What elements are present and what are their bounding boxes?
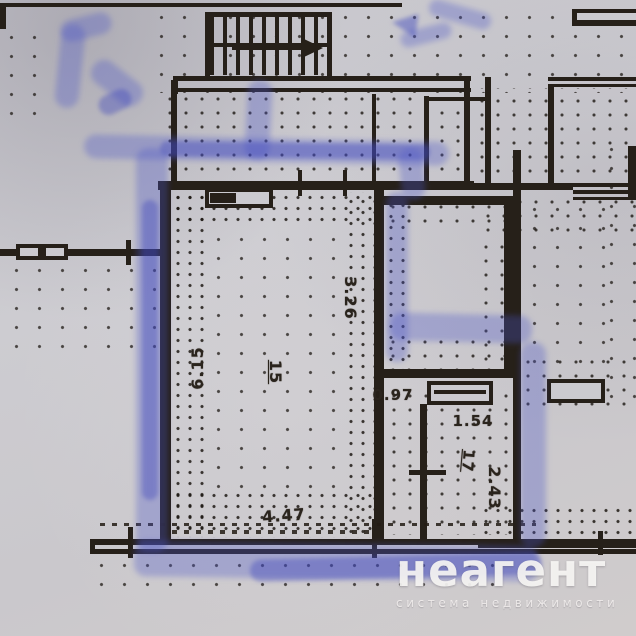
watermark-tagline: система недвижимости	[396, 596, 636, 610]
floor-plan-scan: 6.15 15 3.26 0.97 1.54 17 2.43 4.47 неаг…	[0, 0, 636, 636]
watermark: неагент система недвижимости	[396, 548, 636, 610]
dimension-label: 3.26	[340, 270, 360, 326]
dimension-label: 4.47	[257, 504, 310, 528]
corridor-wall-outer	[173, 76, 471, 81]
partition-wall	[424, 97, 490, 101]
room-wall-right	[374, 190, 384, 540]
doorway-lintel-gap	[577, 13, 636, 20]
threshold-line	[573, 197, 636, 200]
wall-top-boundary	[0, 3, 402, 7]
wall-segment	[548, 84, 636, 87]
alcove-wall-bottom	[378, 369, 515, 378]
stipple-texture	[0, 258, 156, 353]
dimension-label: 0.97	[368, 386, 418, 404]
marker-curve-arrow-icon	[54, 23, 87, 109]
room-number: 15	[265, 347, 285, 397]
wall-segment	[485, 77, 491, 185]
watermark-brand: неагент	[396, 548, 636, 593]
door-tick	[298, 170, 302, 196]
wall-segment	[628, 146, 636, 198]
dashed-line	[172, 530, 374, 534]
threshold-line	[573, 183, 636, 187]
stairs-right-rail	[327, 12, 332, 79]
corridor-wall-inner	[173, 88, 471, 92]
door-tick	[126, 240, 131, 265]
corridor-left-wall	[171, 80, 177, 183]
window-icon	[547, 379, 605, 403]
wall-segment	[471, 183, 573, 190]
room-number: 17	[457, 440, 478, 481]
marker-stroke	[520, 342, 546, 547]
wall-segment	[0, 3, 6, 29]
window-icon	[42, 244, 68, 260]
wall-niche-fill	[210, 193, 236, 203]
dimension-label: 1.54	[448, 412, 498, 430]
alcove-wall-right	[504, 196, 514, 378]
stipple-texture	[0, 28, 42, 123]
door-tick	[409, 470, 446, 475]
window-inner-line	[434, 390, 486, 394]
dimension-label: 6.15	[188, 338, 208, 398]
wall-segment	[548, 77, 636, 81]
marker-left-arrow-icon	[390, 10, 418, 37]
window-icon	[16, 244, 42, 260]
marker-stroke	[142, 200, 158, 500]
stairs-arrow-shaft	[232, 46, 306, 50]
wall-end-cap	[90, 539, 95, 554]
door-tick	[343, 170, 347, 196]
stipple-texture	[342, 192, 378, 537]
dimension-label: 2.43	[484, 460, 504, 516]
marker-stroke	[390, 312, 533, 344]
wall-segment	[548, 86, 554, 185]
threshold-line	[573, 190, 636, 194]
stairs-direction-arrow-icon	[304, 39, 323, 57]
door-tick	[128, 527, 133, 558]
